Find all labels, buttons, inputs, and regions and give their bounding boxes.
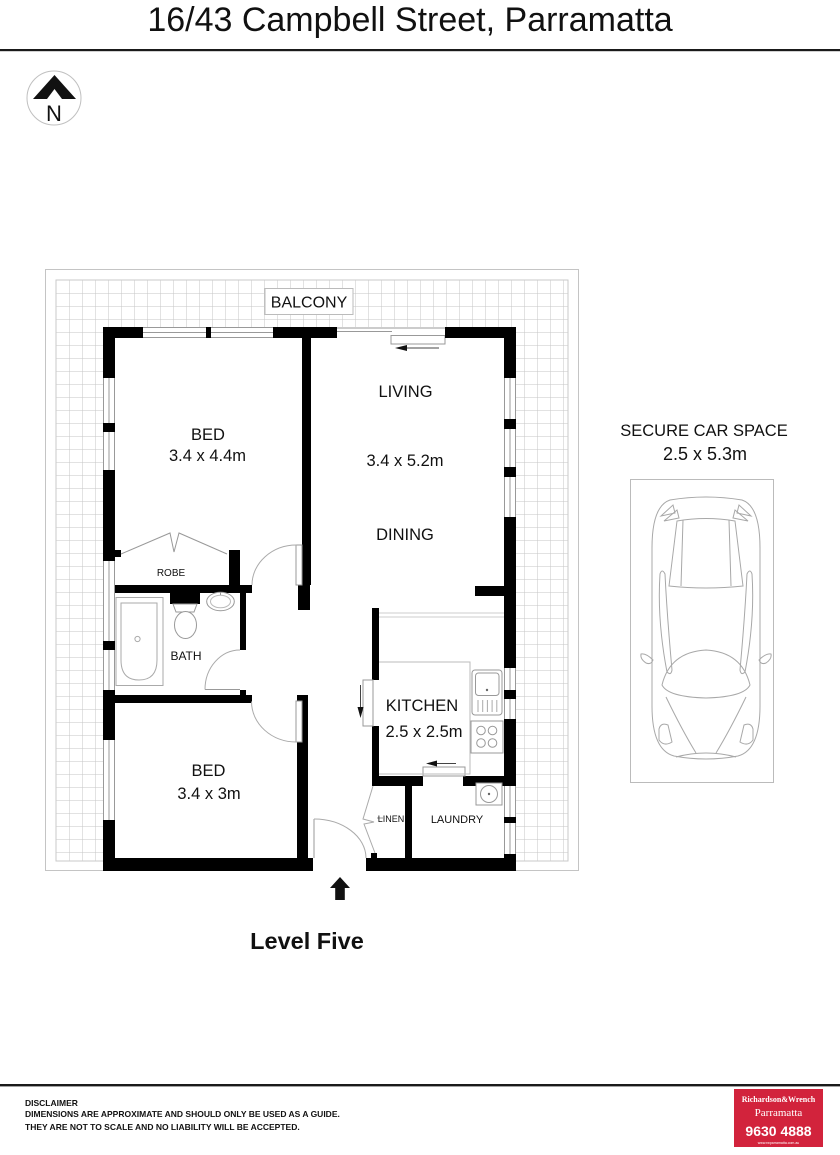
svg-text:DISCLAIMER: DISCLAIMER [25, 1098, 78, 1108]
svg-text:3.4 x 4.4m: 3.4 x 4.4m [169, 447, 246, 465]
svg-text:BED: BED [192, 762, 226, 780]
svg-text:BALCONY: BALCONY [271, 295, 348, 312]
svg-text:2.5 x 2.5m: 2.5 x 2.5m [385, 723, 462, 741]
svg-text:KITCHEN: KITCHEN [386, 697, 458, 715]
svg-text:www.rwparramatta.com.au: www.rwparramatta.com.au [758, 1141, 799, 1145]
svg-text:DIMENSIONS ARE APPROXIMATE AND: DIMENSIONS ARE APPROXIMATE AND SHOULD ON… [25, 1109, 340, 1119]
svg-text:Level Five: Level Five [250, 928, 364, 954]
svg-text:Richardson&Wrench: Richardson&Wrench [742, 1095, 816, 1104]
svg-text:LAUNDRY: LAUNDRY [431, 814, 484, 826]
svg-text:3.4 x 3m: 3.4 x 3m [177, 785, 240, 803]
svg-text:3.4 x 5.2m: 3.4 x 5.2m [366, 452, 443, 470]
svg-text:ROBE: ROBE [157, 568, 186, 579]
svg-text:THEY ARE NOT TO SCALE AND NO L: THEY ARE NOT TO SCALE AND NO LIABILITY W… [25, 1122, 300, 1132]
svg-text:16/43 Campbell Street, Parrama: 16/43 Campbell Street, Parramatta [147, 1, 672, 39]
svg-text:N: N [46, 101, 62, 126]
svg-text:LINEN: LINEN [378, 814, 405, 824]
svg-text:LIVING: LIVING [378, 383, 432, 401]
svg-text:Parramatta: Parramatta [755, 1107, 803, 1119]
svg-text:SECURE CAR SPACE: SECURE CAR SPACE [620, 422, 787, 440]
svg-text:DINING: DINING [376, 526, 434, 544]
svg-text:BATH: BATH [170, 649, 201, 663]
svg-text:9630 4888: 9630 4888 [745, 1123, 811, 1139]
svg-text:2.5 x 5.3m: 2.5 x 5.3m [663, 444, 747, 464]
svg-text:BED: BED [191, 426, 225, 444]
